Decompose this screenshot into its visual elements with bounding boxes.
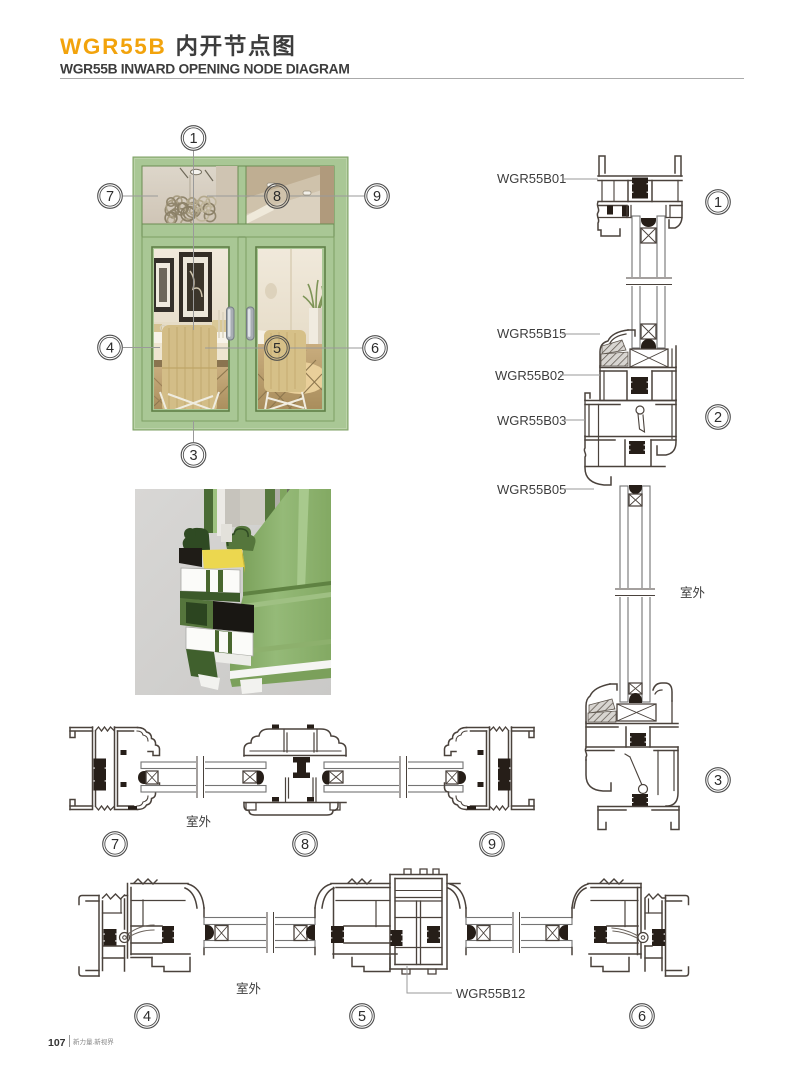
- svg-text:2: 2: [714, 410, 722, 426]
- svg-text:WGR55B02: WGR55B02: [495, 368, 564, 383]
- svg-text:3: 3: [189, 448, 197, 464]
- svg-text:8: 8: [273, 189, 281, 205]
- svg-text:WGR55B01: WGR55B01: [497, 171, 566, 186]
- svg-text:107: 107: [48, 1037, 66, 1049]
- svg-text:9: 9: [373, 189, 381, 205]
- svg-text:1: 1: [189, 131, 197, 147]
- svg-text:WGR55B内开节点图: WGR55B内开节点图: [60, 34, 296, 59]
- svg-text:3: 3: [714, 773, 722, 789]
- svg-text:4: 4: [106, 341, 114, 357]
- svg-text:5: 5: [273, 341, 281, 357]
- svg-text:WGR55B12: WGR55B12: [456, 986, 525, 1001]
- svg-text:7: 7: [111, 837, 119, 853]
- svg-text:WGR55B INWARD OPENING NODE DIA: WGR55B INWARD OPENING NODE DIAGRAM: [60, 62, 350, 77]
- svg-text:新力量.新视界: 新力量.新视界: [73, 1037, 114, 1046]
- svg-text:4: 4: [143, 1009, 151, 1025]
- svg-text:6: 6: [371, 341, 379, 357]
- svg-text:WGR55B03: WGR55B03: [497, 413, 566, 428]
- svg-text:7: 7: [106, 189, 114, 205]
- svg-text:室外: 室外: [236, 981, 262, 996]
- svg-text:室外: 室外: [680, 585, 706, 600]
- svg-text:WGR55B05: WGR55B05: [497, 482, 566, 497]
- svg-text:5: 5: [358, 1009, 366, 1025]
- svg-text:WGR55B15: WGR55B15: [497, 326, 566, 341]
- svg-text:1: 1: [714, 195, 722, 211]
- svg-text:9: 9: [488, 837, 496, 853]
- svg-text:8: 8: [301, 837, 309, 853]
- svg-text:室外: 室外: [186, 814, 212, 829]
- svg-text:6: 6: [638, 1009, 646, 1025]
